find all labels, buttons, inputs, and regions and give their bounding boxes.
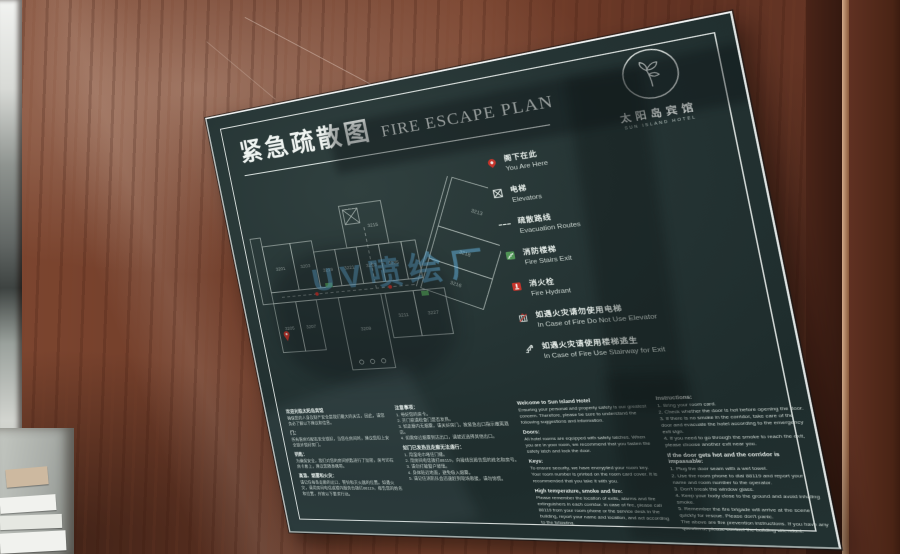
legend: 阁下在此 You Are Here 电梯 Elevators 疏散路线 Evac… bbox=[485, 117, 795, 362]
shelf-paper bbox=[0, 530, 66, 553]
door-frame bbox=[849, 0, 900, 554]
svg-text:3211: 3211 bbox=[398, 312, 410, 318]
column-chinese-instructions: 注意事项： 1. 带好您的房卡。 2. 开门前请检查门是否发热。 3. 如走廊内… bbox=[394, 401, 533, 528]
fire-stairs-marker bbox=[325, 283, 333, 288]
svg-text:3219: 3219 bbox=[322, 266, 334, 273]
column-english-instructions: Instructions: 1. Bring your room card. 2… bbox=[655, 390, 831, 535]
col1-text: 所有客房均配有安全锁扣，当您在房间时，建议您扣上安全锁并锁好房门。 bbox=[291, 435, 394, 448]
col3-text: To ensure security, we have encrypted yo… bbox=[530, 465, 663, 485]
column-chinese-welcome: 欢迎光临太阳岛宾馆 确保您的人身及财产安全是我们最大的关注，因此，请您务必了解以… bbox=[285, 405, 410, 525]
you-are-here-pin-icon bbox=[485, 157, 498, 169]
hydrant-marker bbox=[315, 292, 319, 296]
col1-text: 为确保安全，我们对您的房间钥匙进行了加密，房号印在房卡套上，建议您随身携带。 bbox=[295, 457, 399, 469]
logo-circle bbox=[618, 44, 684, 103]
svg-text:3205: 3205 bbox=[284, 325, 295, 331]
dashed-route-icon bbox=[498, 219, 512, 231]
fire-stairs-icon bbox=[504, 250, 517, 261]
col3-heading: Keys: bbox=[528, 457, 658, 464]
svg-text:3218: 3218 bbox=[458, 249, 472, 258]
col2-text: 1. 用湿毛巾堵住门缝。 2. 用房间电话拨打88119，向接线员报告您的姓名和… bbox=[404, 451, 524, 482]
svg-text:3227: 3227 bbox=[427, 309, 440, 316]
elevator-box-icon bbox=[491, 188, 504, 200]
svg-text:3215: 3215 bbox=[367, 221, 379, 228]
col3-text: All hotel rooms are equipped with safety… bbox=[524, 434, 657, 455]
col1-text: 请记住每条走廊的出口、警铃和灭火器的位置。如遇火灾，请用房间电话或楼内服务台拨打… bbox=[300, 480, 405, 498]
svg-text:3221: 3221 bbox=[344, 264, 356, 271]
col1-heading: 钥匙： bbox=[294, 450, 396, 457]
col4-text: 1. Plug the door seam with a wet towel. … bbox=[669, 465, 828, 521]
legend-item-use-stairway: 如遇火灾请使用楼梯逃生 In Case of Fire Use Stairway… bbox=[523, 326, 796, 361]
col4-heading: If the door gets hot and the corridor is… bbox=[667, 451, 817, 464]
col1-text: 确保您的人身及财产安全是我们最大的关注，因此，请您务必了解以下建议和信息。 bbox=[287, 412, 390, 426]
title-zh: 紧急疏散图 bbox=[236, 109, 375, 168]
svg-text:3223: 3223 bbox=[365, 262, 377, 269]
svg-text:3225: 3225 bbox=[388, 259, 401, 266]
svg-text:3201: 3201 bbox=[275, 266, 286, 272]
plant-icon bbox=[629, 55, 672, 93]
col3-heading: High temperature, smoke and fire: bbox=[534, 488, 665, 495]
shelf-folder bbox=[5, 466, 48, 488]
col1-heading: 高温、烟雾和火灾： bbox=[298, 473, 401, 479]
floor-plan: 3201 3203 3205 3207 3209 3211 3215 3219 … bbox=[237, 150, 527, 390]
svg-text:3209: 3209 bbox=[360, 325, 372, 331]
information-columns: 欢迎光临太阳岛宾馆 确保您的人身及财产安全是我们最大的关注，因此，请您务必了解以… bbox=[285, 390, 831, 535]
svg-text:3203: 3203 bbox=[300, 263, 312, 269]
svg-text:3213: 3213 bbox=[470, 207, 484, 216]
fire-hydrant-icon bbox=[510, 281, 523, 292]
hydrant-marker bbox=[388, 285, 392, 289]
col3-text: Ensuring your personal and property safe… bbox=[518, 403, 651, 426]
col2-text: 1. 带好您的房卡。 2. 开门前请检查门是否发热。 3. 如走廊内无烟雾，请关… bbox=[396, 408, 516, 441]
no-elevator-icon bbox=[517, 312, 530, 323]
svg-text:3207: 3207 bbox=[306, 323, 318, 329]
shelf-paper bbox=[0, 514, 62, 530]
svg-text:3216: 3216 bbox=[449, 279, 463, 288]
door-edge-highlight bbox=[842, 0, 849, 554]
fire-stairs-marker bbox=[421, 290, 429, 296]
you-are-here-marker bbox=[283, 331, 291, 341]
col4-text: 1. Bring your room card. 2. Check whethe… bbox=[657, 397, 814, 448]
col3-text: Please remember the location of exits, a… bbox=[535, 494, 671, 528]
column-english-welcome: Welcome to Sun Island Hotel Ensuring you… bbox=[516, 396, 672, 532]
col2-heading: 如门已发热且走廊无法通行： bbox=[402, 443, 517, 451]
col4-text: The above are fire prevention instructio… bbox=[680, 518, 831, 535]
hotel-logo: 太阳岛宾馆 SUN ISLAND HOTEL bbox=[586, 37, 725, 135]
stairway-exit-icon bbox=[523, 343, 536, 354]
legend-item-no-elevator: 如遇火灾请勿使用电梯 In Case of Fire Do Not Use El… bbox=[516, 291, 788, 330]
title-en: FIRE ESCAPE PLAN bbox=[380, 92, 556, 141]
